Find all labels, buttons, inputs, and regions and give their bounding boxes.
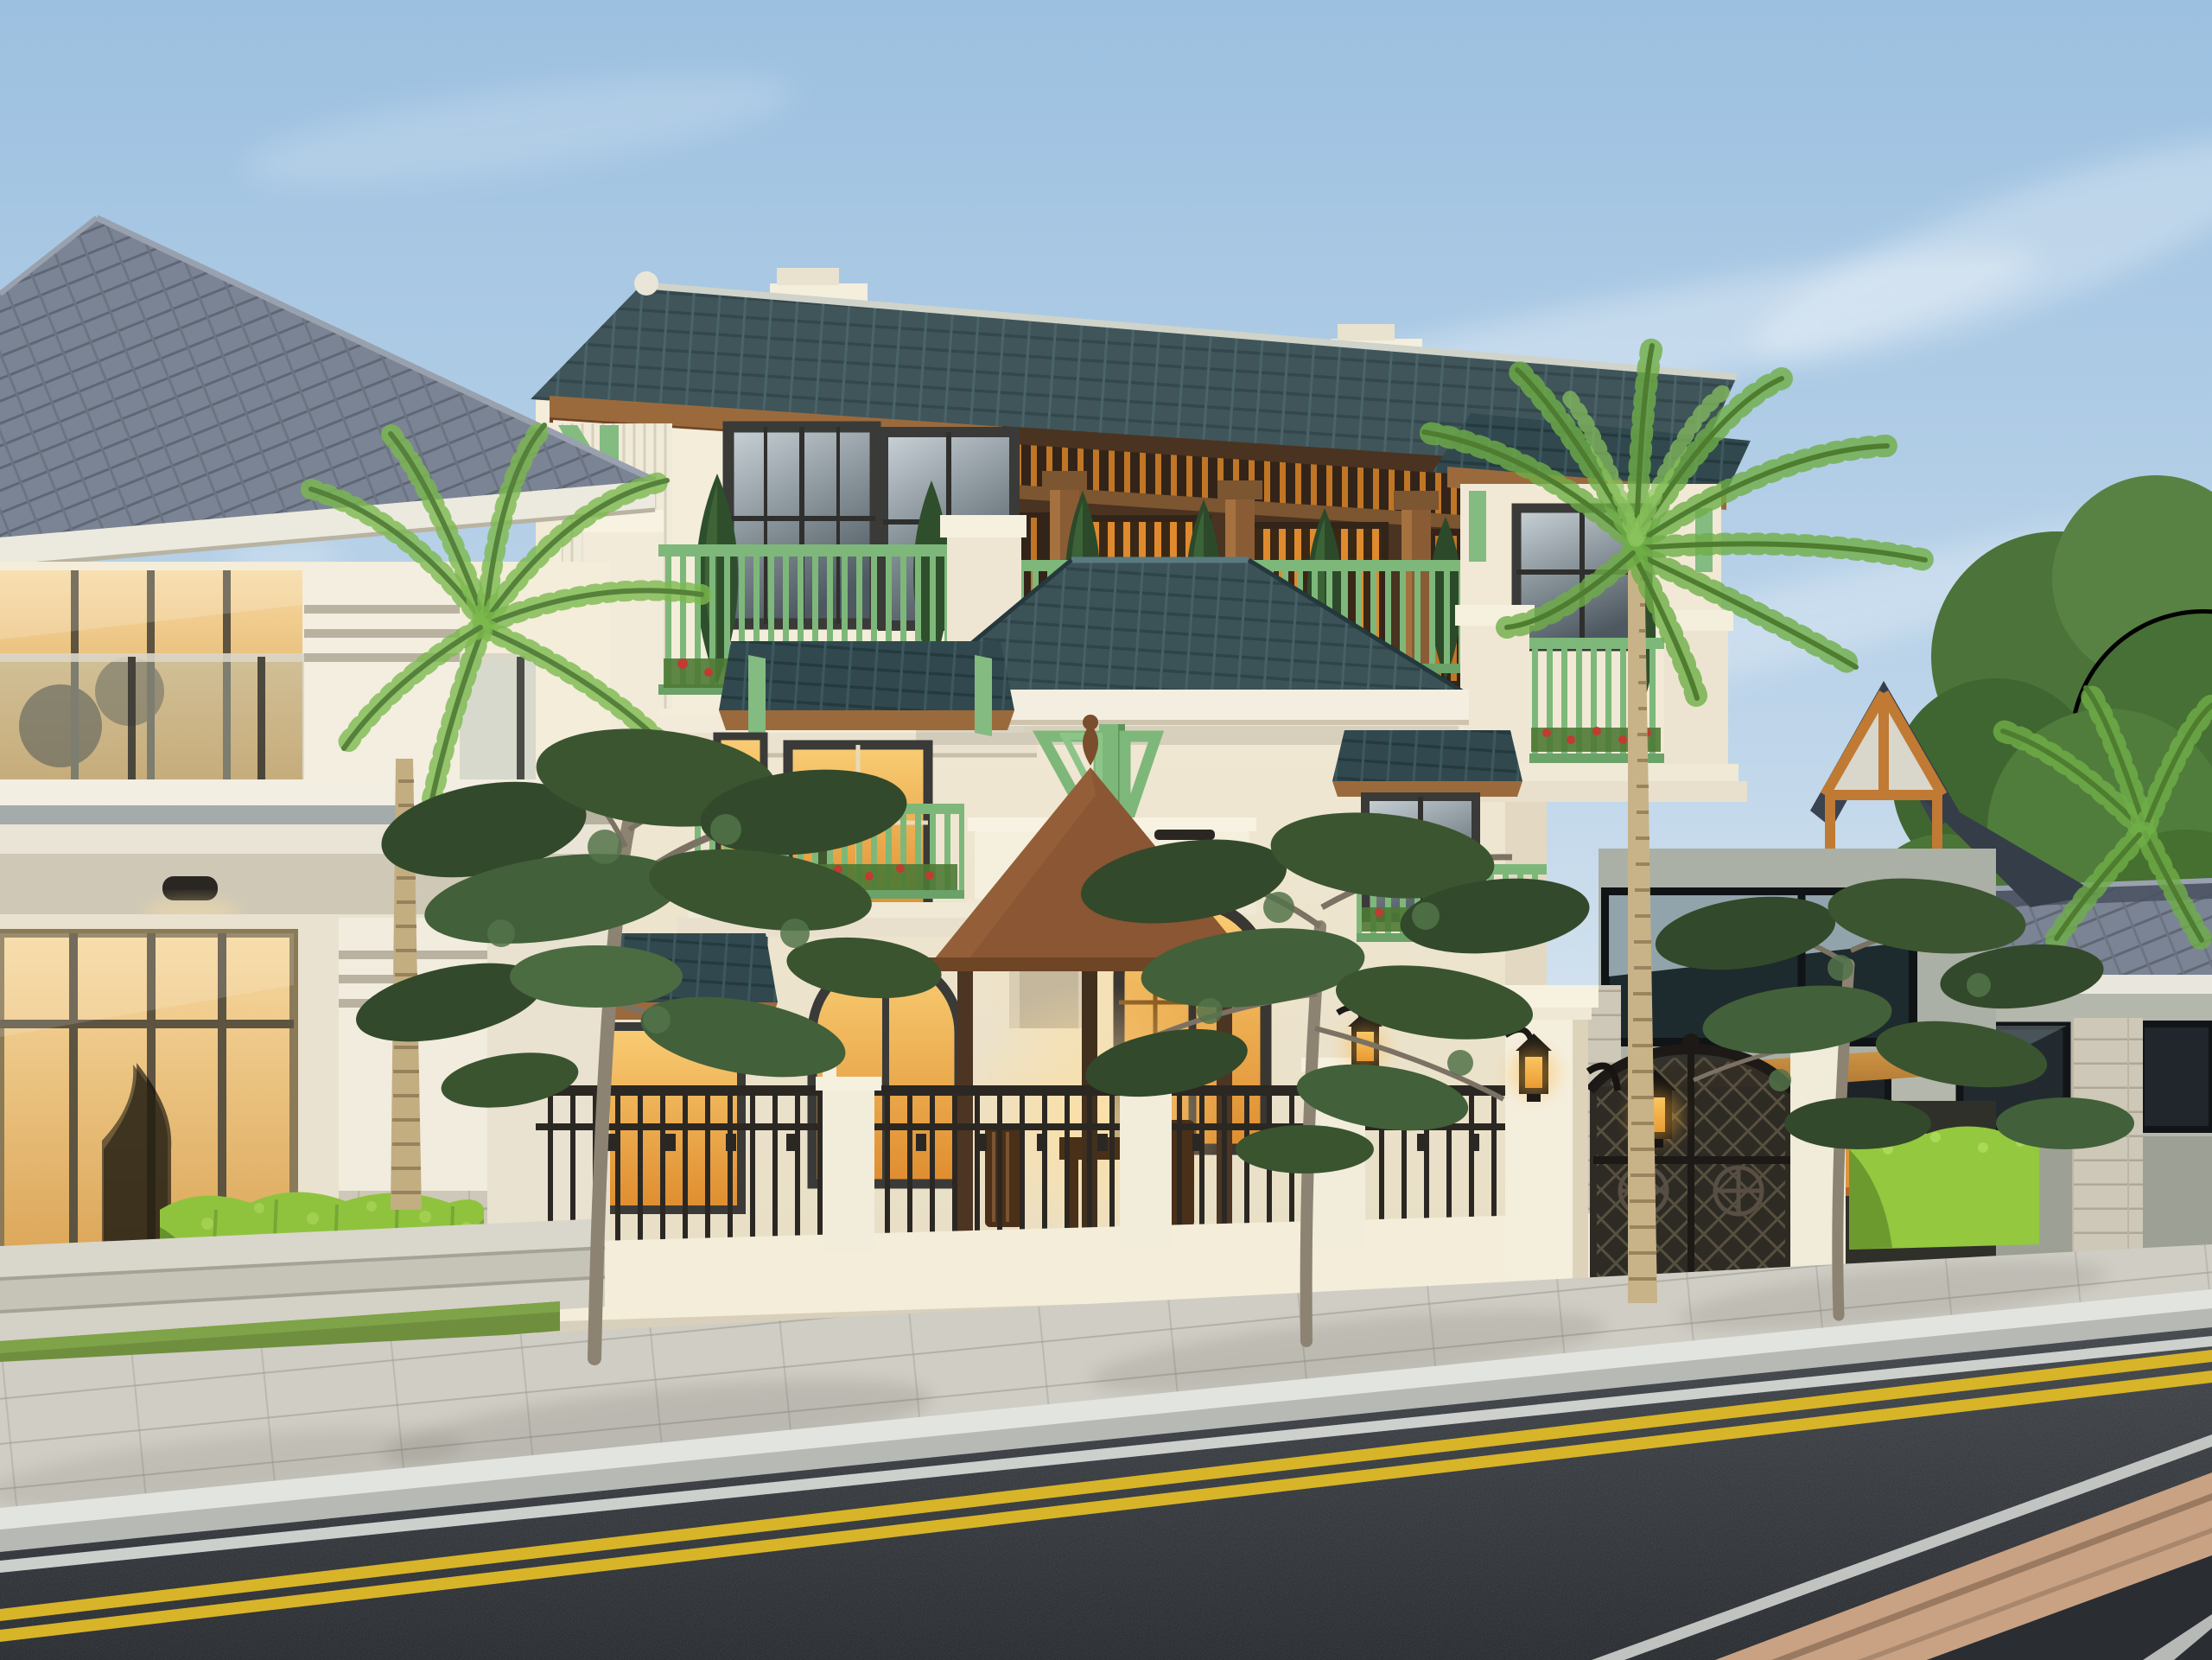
render-canvas: Street-front architectural render of a t… (0, 0, 2212, 1660)
right-bay-awning (1332, 730, 1522, 781)
scene-svg: Street-front architectural render of a t… (0, 0, 2212, 1660)
recessed-light (162, 876, 218, 900)
ridge-scroll (634, 271, 658, 296)
